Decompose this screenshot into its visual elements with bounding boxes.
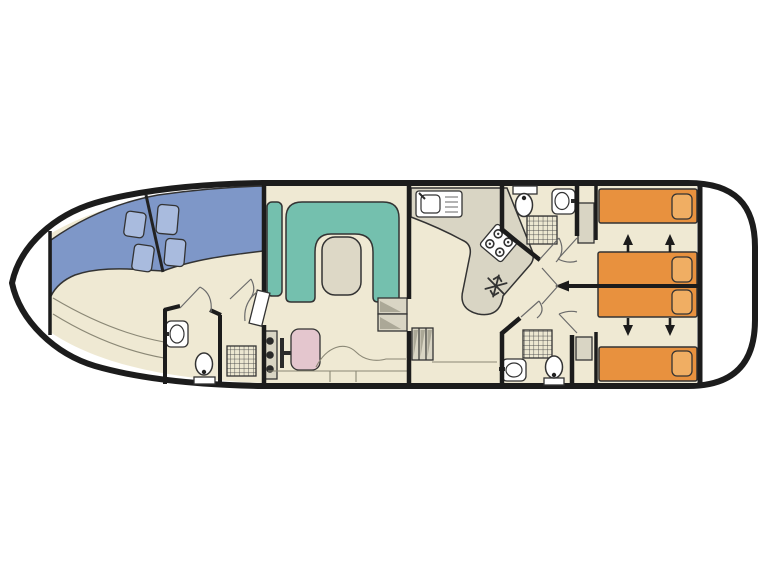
shower-tray <box>523 330 552 358</box>
steps-upper <box>378 298 407 331</box>
bed-pillow <box>672 351 692 376</box>
toilet-dot <box>552 373 556 377</box>
bed-pillow <box>672 257 692 282</box>
shower-tray <box>227 346 256 376</box>
helm-knob <box>266 365 274 373</box>
boat-floor-plan <box>0 0 768 576</box>
shower-tray <box>527 216 557 244</box>
kitchen-sink <box>416 191 462 217</box>
bed-pillow <box>672 194 692 219</box>
bed-pillow <box>672 290 692 314</box>
bow-pillow <box>131 244 154 273</box>
helm-knob <box>266 351 274 359</box>
toilet-dot <box>202 370 206 374</box>
steps-lower <box>412 328 433 360</box>
toilet-base <box>194 377 215 384</box>
throttle-lever <box>280 338 284 368</box>
toilet-dot <box>522 196 526 200</box>
saloon-side-bench <box>267 202 282 296</box>
toilet-base <box>544 378 564 385</box>
bow-pillow <box>164 238 186 267</box>
bow-pillow <box>156 204 179 235</box>
helm-seat <box>291 329 320 370</box>
saloon-table <box>322 237 361 295</box>
toilet-cistern <box>513 186 537 194</box>
helm-knob <box>266 337 274 345</box>
floor-plan-canvas <box>0 0 768 576</box>
wardrobe-top <box>578 203 594 243</box>
bow-pillow <box>123 211 146 239</box>
wardrobe-bottom <box>576 337 592 360</box>
